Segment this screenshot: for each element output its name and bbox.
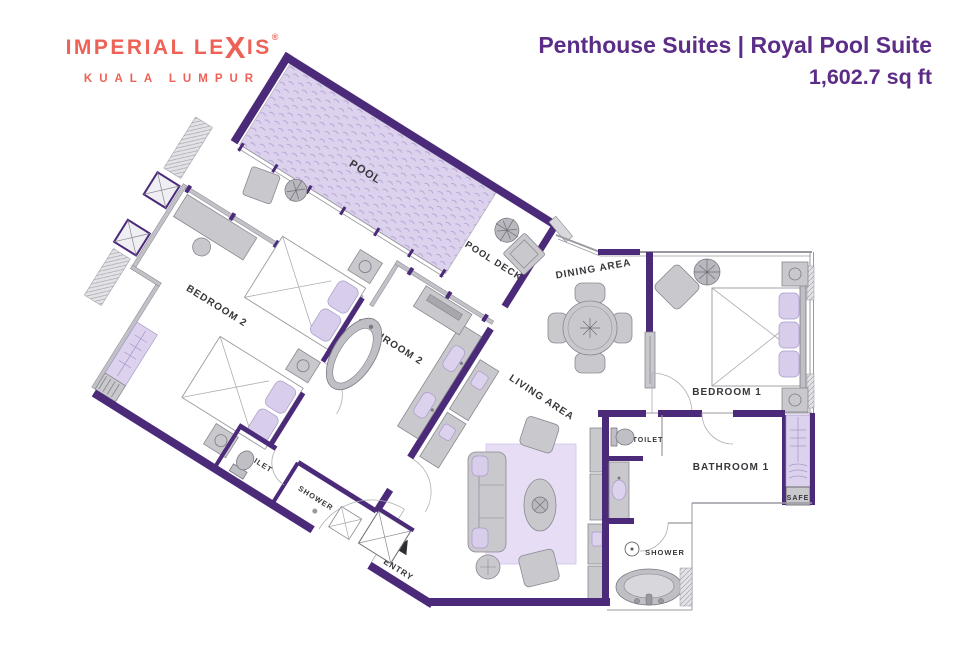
bathroom1-left-wall bbox=[602, 413, 609, 606]
bedroom2-label: BEDROOM 2 bbox=[184, 283, 249, 329]
floorplan-drawing: POOL POOL DECK bbox=[0, 0, 980, 650]
living-label: LIVING AREA bbox=[507, 373, 576, 423]
bedroom1-bed bbox=[712, 284, 806, 390]
planter-strip-2 bbox=[84, 248, 130, 305]
shower2-drain bbox=[311, 508, 318, 515]
shower1-label: SHOWER bbox=[645, 548, 685, 557]
dining-chair-south bbox=[575, 353, 605, 373]
bedroom2-nightstand-2 bbox=[286, 349, 321, 383]
living-coffee-table bbox=[524, 479, 556, 531]
floorplan-page: IMPERIAL LEXIS® KUALA LUMPUR Penthouse S… bbox=[0, 0, 980, 650]
shower1-step bbox=[680, 568, 692, 606]
dining-centerpiece bbox=[580, 318, 600, 338]
bathroom1-vanity bbox=[609, 462, 629, 520]
shower1-tub bbox=[616, 569, 682, 605]
shower1-room: SHOWER bbox=[602, 503, 692, 610]
bedroom1-nightstand-1 bbox=[782, 262, 808, 286]
toilet1-compartment: TOILET bbox=[609, 415, 663, 461]
shower2-label: SHOWER bbox=[297, 484, 335, 513]
toilet1-label: TOILET bbox=[633, 437, 664, 444]
bedroom2-bed-2 bbox=[182, 336, 303, 449]
bedroom1-plant bbox=[694, 259, 720, 285]
entry-shaft-box bbox=[357, 506, 415, 564]
bedroom1-tv-console bbox=[645, 332, 655, 388]
entry-shaft-box-2 bbox=[329, 506, 362, 539]
planter-strip-1 bbox=[164, 117, 213, 178]
living-sofa bbox=[468, 452, 506, 552]
bedroom1-label: BEDROOM 1 bbox=[692, 387, 762, 398]
dining-chair-north bbox=[575, 283, 605, 303]
safe-label: SAFE bbox=[787, 495, 810, 502]
shower1-head-icon bbox=[625, 542, 639, 556]
terrace-armchair bbox=[242, 166, 280, 204]
living-side-table bbox=[476, 555, 500, 579]
bedroom1-nightstand-2 bbox=[782, 388, 808, 412]
bathroom1-label: BATHROOM 1 bbox=[693, 462, 769, 473]
living-bottom-wall bbox=[428, 598, 610, 606]
closet-right-wall bbox=[810, 413, 815, 505]
dining-table-set bbox=[548, 283, 632, 373]
bedroom2-nightstand-1 bbox=[348, 249, 383, 283]
bedroom1-left-wall bbox=[646, 252, 653, 332]
toilet1-bowl bbox=[616, 429, 634, 445]
dining-label: DINING AREA bbox=[555, 257, 632, 281]
